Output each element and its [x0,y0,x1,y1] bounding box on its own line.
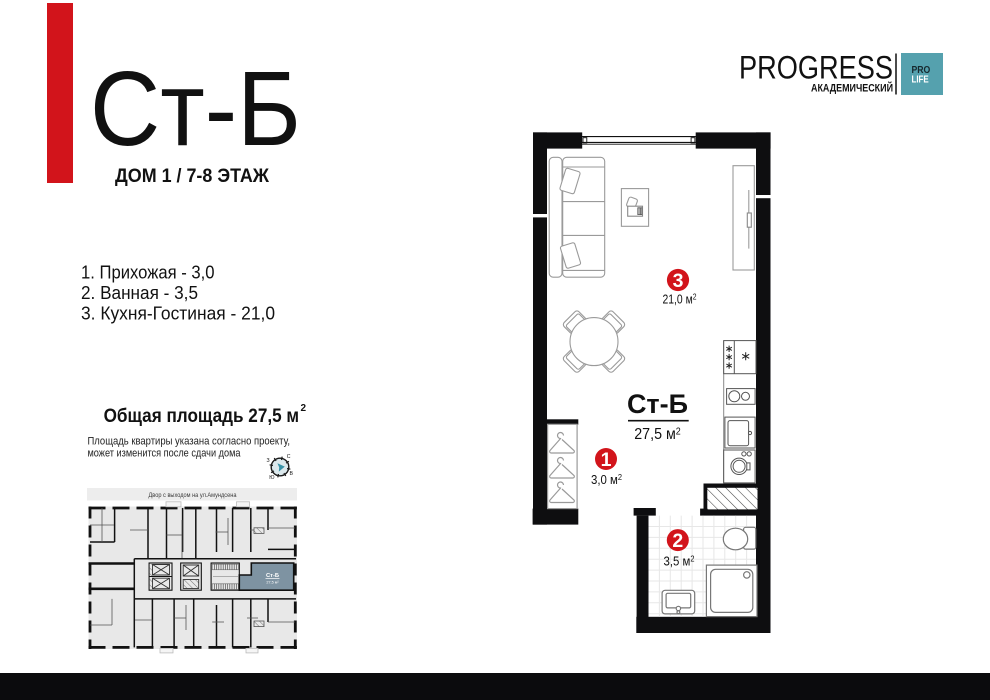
svg-text:АКАДЕМИЧЕСКИЙ: АКАДЕМИЧЕСКИЙ [811,82,893,95]
svg-text:21,0 м2: 21,0 м2 [663,292,697,307]
svg-text:Ст-Б: Ст-Б [627,389,688,419]
svg-text:Общая площадь 27,5 м: Общая площадь 27,5 м [104,406,300,427]
svg-text:3. Кухня-Гостиная - 21,0: 3. Кухня-Гостиная - 21,0 [81,304,275,324]
svg-text:27,5 м²: 27,5 м² [266,581,279,585]
svg-text:С: С [287,454,291,460]
svg-text:3,0 м2: 3,0 м2 [591,472,622,487]
svg-text:Ст-Б: Ст-Б [266,573,279,579]
svg-text:Двор с выходом на ул.Амундсена: Двор с выходом на ул.Амундсена [149,492,237,499]
svg-text:З: З [267,458,270,464]
svg-text:Площадь квартиры указана согла: Площадь квартиры указана согласно проект… [88,435,291,447]
svg-text:может изменится после сдачи до: может изменится после сдачи дома [88,447,241,459]
svg-text:1. Прихожая - 3,0: 1. Прихожая - 3,0 [81,263,215,283]
svg-text:LIFE: LIFE [912,75,929,86]
svg-text:2: 2 [672,530,683,552]
svg-text:27,5 м2: 27,5 м2 [634,426,681,443]
svg-text:1: 1 [601,449,612,471]
svg-text:Ю: Ю [269,475,274,481]
svg-text:2. Ванная - 3,5: 2. Ванная - 3,5 [81,283,198,303]
svg-text:ДОМ 1 / 7-8 ЭТАЖ: ДОМ 1 / 7-8 ЭТАЖ [115,165,269,187]
svg-text:В: В [290,471,294,477]
svg-text:Ст-Б: Ст-Б [90,50,301,168]
svg-text:3,5 м2: 3,5 м2 [664,554,695,569]
svg-text:2: 2 [301,403,307,414]
svg-text:3: 3 [673,270,684,292]
svg-text:PROGRESS: PROGRESS [739,49,893,85]
